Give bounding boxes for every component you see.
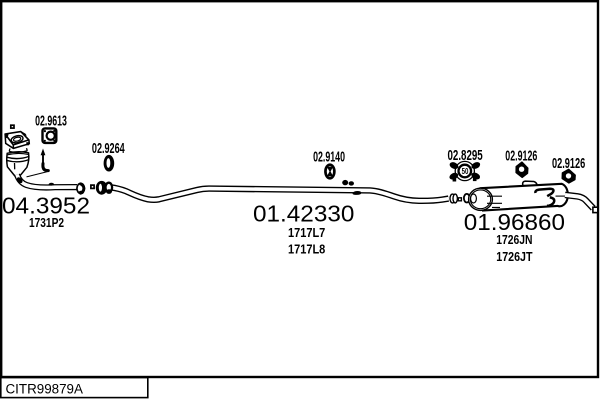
svg-text:02.8295: 02.8295 [448, 148, 483, 164]
svg-text:1726JN: 1726JN [496, 232, 532, 247]
svg-text:02.9126: 02.9126 [505, 149, 537, 165]
svg-text:CITR99879A: CITR99879A [6, 382, 83, 397]
svg-text:1731P2: 1731P2 [29, 215, 64, 230]
svg-text:1726JT: 1726JT [496, 249, 532, 264]
svg-text:02.9613: 02.9613 [35, 114, 67, 130]
svg-text:02.9264: 02.9264 [92, 141, 125, 157]
svg-text:50: 50 [462, 166, 469, 176]
svg-text:01.42330: 01.42330 [253, 201, 354, 227]
svg-text:1717L7: 1717L7 [288, 225, 325, 240]
svg-text:02.9126: 02.9126 [552, 156, 585, 172]
svg-text:02.9140: 02.9140 [313, 150, 345, 166]
svg-text:1717L8: 1717L8 [288, 241, 325, 256]
